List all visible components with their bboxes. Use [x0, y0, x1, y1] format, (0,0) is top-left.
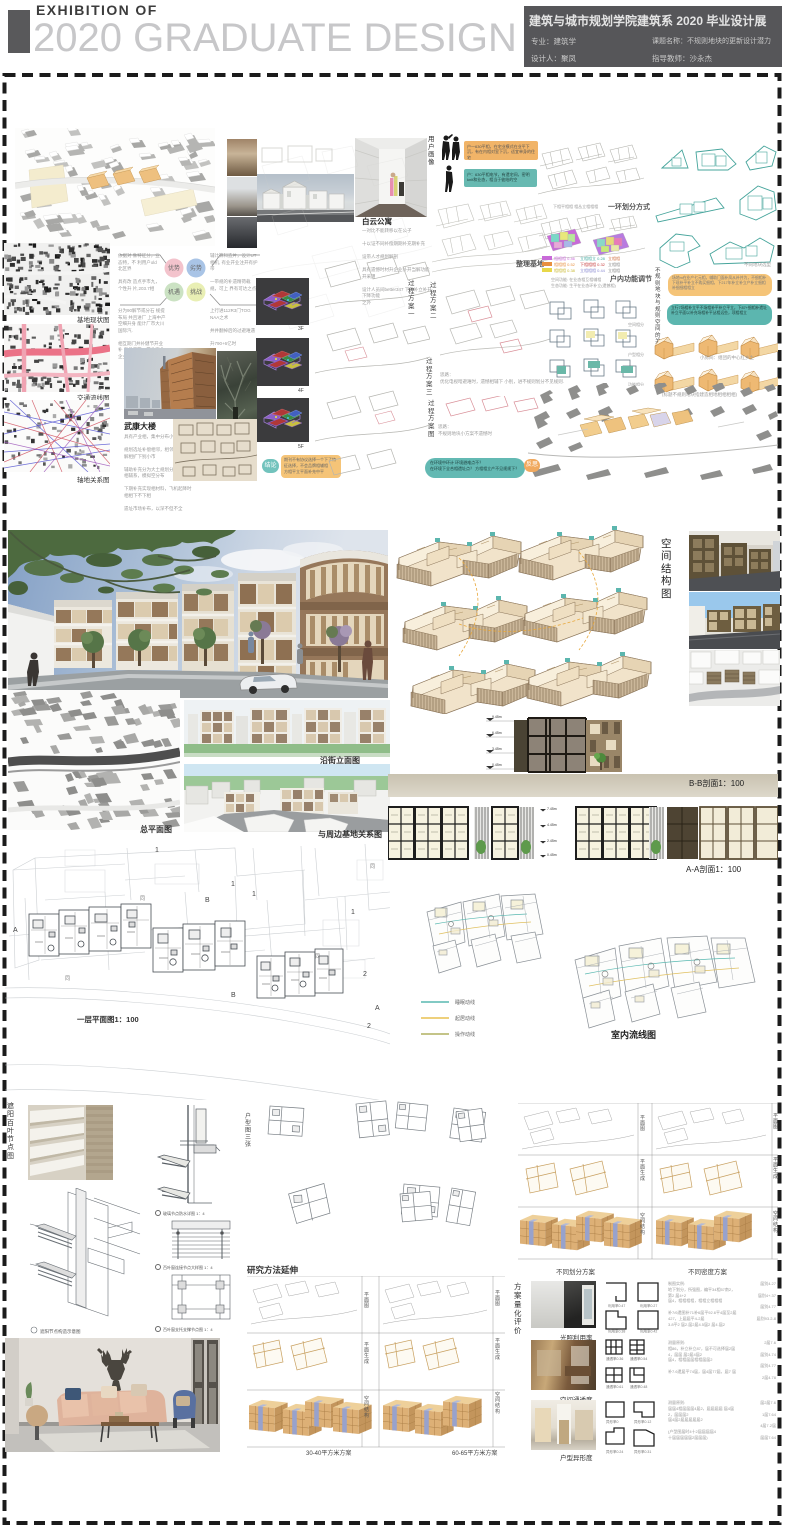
svg-text:遮阳节点构造示意图: 遮阳节点构造示意图 [40, 1328, 81, 1335]
svg-text:同: 同 [370, 864, 375, 870]
svg-text:同: 同 [65, 976, 70, 982]
svg-text:利用率0.27: 利用率0.27 [640, 1303, 657, 1308]
svg-text:0.45m: 0.45m [492, 763, 502, 767]
svg-text:异形率0.12: 异形率0.12 [634, 1419, 651, 1424]
svg-text:立相相相 0.44: 立相相相 0.44 [580, 267, 606, 273]
svg-text:相相相 0.46: 相相相 0.46 [554, 256, 576, 261]
svg-text:下相相相 0.32: 下相相相 0.32 [580, 261, 606, 267]
svg-text:2: 2 [367, 1023, 371, 1030]
svg-text:立相相立 0.28: 立相相立 0.28 [580, 256, 606, 261]
svg-text:相相相 0.38: 相相相 0.38 [554, 267, 576, 273]
svg-text:B: B [231, 992, 236, 999]
svg-text:平面生成: 平面生成 [364, 1342, 369, 1365]
svg-text:1: 1 [252, 891, 256, 898]
svg-text:异形率0.24: 异形率0.24 [606, 1449, 623, 1454]
svg-text:通透率0.61: 通透率0.61 [606, 1384, 623, 1389]
svg-text:同: 同 [315, 954, 320, 960]
svg-text:空间结构: 空间结构 [640, 1212, 645, 1236]
svg-text:立相相: 立相相 [608, 256, 620, 261]
svg-text:利用率0.42: 利用率0.42 [640, 1329, 657, 1334]
svg-text:平面图: 平面图 [773, 1113, 778, 1130]
svg-text:室内流线图: 室内流线图 [611, 1029, 656, 1040]
svg-text:A: A [13, 927, 18, 934]
svg-text:平面生成: 平面生成 [773, 1157, 778, 1180]
svg-text:9.45m: 9.45m [492, 715, 502, 719]
svg-text:利用率0.38: 利用率0.38 [608, 1329, 625, 1334]
svg-text:优势: 优势 [168, 264, 180, 272]
svg-text:异形率0: 异形率0 [606, 1419, 618, 1424]
svg-text:相相相 0.52: 相相相 0.52 [554, 261, 576, 267]
svg-text:平面图: 平面图 [640, 1115, 645, 1132]
svg-text:百叶窗支托支撑节点图 1：4: 百叶窗支托支撑节点图 1：4 [163, 1326, 213, 1332]
svg-text:通透率0.48: 通透率0.48 [630, 1384, 647, 1389]
svg-text:4.45m: 4.45m [547, 823, 557, 827]
svg-text:睡眠动线: 睡眠动线 [455, 999, 475, 1006]
svg-text:2: 2 [363, 971, 367, 978]
svg-text:空间结构: 空间结构 [364, 1395, 369, 1419]
svg-text:1: 1 [231, 881, 235, 888]
svg-text:3.45m: 3.45m [492, 747, 502, 751]
svg-text:平面生成: 平面生成 [495, 1338, 500, 1361]
svg-text:异形率0.31: 异形率0.31 [634, 1449, 651, 1454]
svg-text:空间结构: 空间结构 [495, 1391, 500, 1415]
svg-text:7.45m: 7.45m [547, 807, 557, 811]
svg-text:利用率0.47: 利用率0.47 [608, 1303, 625, 1308]
svg-text:0.45m: 0.45m [547, 853, 557, 857]
svg-text:同: 同 [140, 896, 145, 902]
svg-text:平面图: 平面图 [495, 1290, 500, 1307]
svg-text:1: 1 [155, 847, 159, 854]
svg-text:劣势: 劣势 [190, 264, 202, 272]
svg-text:玻璃节点防水详图 1：4: 玻璃节点防水详图 1：4 [163, 1210, 205, 1216]
svg-text:户型相分: 户型相分 [628, 351, 644, 357]
svg-text:A: A [375, 1005, 380, 1012]
svg-text:空间结构: 空间结构 [773, 1210, 778, 1234]
svg-text:2.45m: 2.45m [547, 839, 557, 843]
svg-text:平面图: 平面图 [364, 1292, 369, 1309]
svg-text:平面生成: 平面生成 [640, 1159, 645, 1182]
svg-text:通透率0.36: 通透率0.36 [606, 1356, 623, 1361]
svg-text:一层平面图1：100: 一层平面图1：100 [77, 1015, 139, 1024]
svg-text:6.45m: 6.45m [492, 731, 502, 735]
svg-text:空间相分: 空间相分 [628, 321, 644, 327]
svg-text:起居动线: 起居动线 [455, 1015, 475, 1022]
svg-text:百叶窗连接节点大样图 1：4: 百叶窗连接节点大样图 1：4 [163, 1264, 213, 1270]
svg-text:挑战: 挑战 [190, 288, 202, 296]
svg-text:B: B [205, 897, 210, 904]
svg-text:立相相: 立相相 [608, 261, 620, 267]
svg-text:1: 1 [351, 909, 355, 916]
svg-text:通透率0.54: 通透率0.54 [630, 1356, 647, 1361]
svg-text:立相相: 立相相 [608, 267, 620, 273]
svg-text:机遇: 机遇 [168, 288, 180, 296]
svg-text:操作动线: 操作动线 [455, 1031, 475, 1038]
